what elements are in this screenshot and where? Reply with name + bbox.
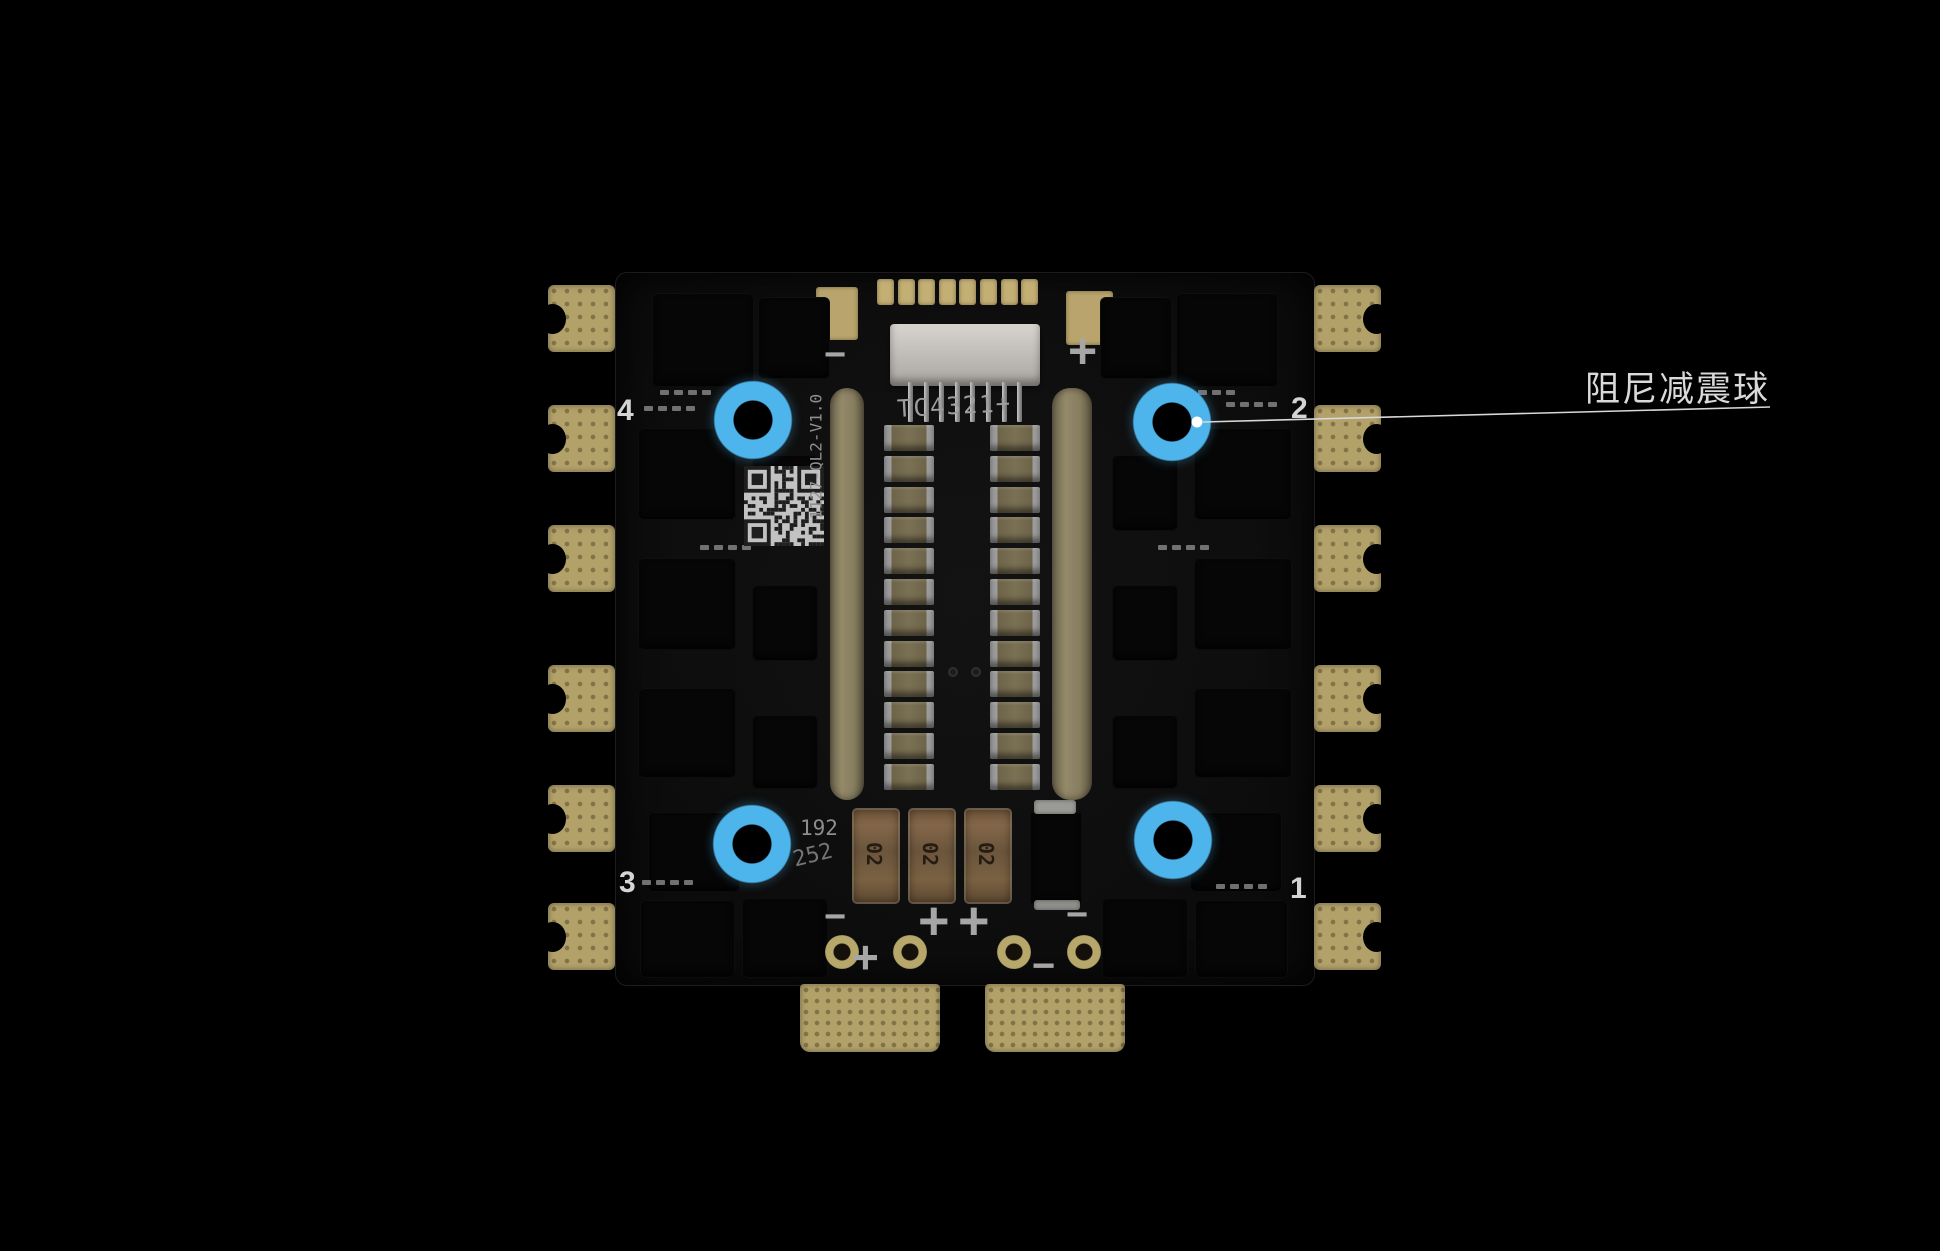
mlcc-capacitor xyxy=(884,517,934,543)
pin-dash xyxy=(1268,402,1277,407)
diode-lead xyxy=(1034,800,1076,814)
pin-dash xyxy=(674,390,683,395)
mlcc-capacitor xyxy=(990,610,1040,636)
tab-notch xyxy=(1363,424,1390,454)
silkscreen-code-192: 192 xyxy=(800,816,838,840)
connector-pad xyxy=(939,279,956,305)
mlcc-capacitor xyxy=(884,671,934,697)
damping-ball-highlight xyxy=(1133,800,1213,880)
mosfet-chip xyxy=(652,293,754,387)
mlcc-capacitor xyxy=(990,425,1040,451)
bulk-capacitor: 02 xyxy=(964,808,1012,904)
via-hole xyxy=(971,667,981,677)
battery-pad xyxy=(985,984,1125,1052)
mlcc-capacitor xyxy=(990,517,1040,543)
mlcc-capacitor xyxy=(884,548,934,574)
solder-pad-hole xyxy=(997,935,1031,969)
pin-dash xyxy=(1230,884,1239,889)
pin-dash xyxy=(672,406,681,411)
ffc-connector xyxy=(890,324,1040,386)
pin-dash xyxy=(1186,545,1195,550)
silkscreen-version-text: 1127-QL2-V1.0 xyxy=(807,347,826,567)
mosfet-chip xyxy=(1194,688,1292,778)
mlcc-capacitor xyxy=(990,764,1040,790)
mosfet-chip xyxy=(638,558,736,650)
pin-dash xyxy=(688,390,697,395)
connector-pad xyxy=(918,279,935,305)
connector-pad xyxy=(959,279,976,305)
mlcc-capacitor xyxy=(884,425,934,451)
bulk-capacitor: 02 xyxy=(908,808,956,904)
mosfet-chip xyxy=(640,900,735,978)
tab-notch xyxy=(1363,684,1390,714)
tab-notch xyxy=(1363,922,1390,952)
motor-pad-tab xyxy=(1314,405,1381,472)
pin-dash xyxy=(1240,402,1249,407)
mlcc-capacitor xyxy=(884,702,934,728)
mlcc-capacitor xyxy=(884,764,934,790)
motor-pad-tab xyxy=(1314,785,1381,852)
pin-dash xyxy=(658,406,667,411)
mosfet-chip xyxy=(638,688,736,778)
connector-pad xyxy=(980,279,997,305)
bottom-plus-center-right-mark: + xyxy=(958,894,990,948)
motor-pad-tab xyxy=(548,525,615,592)
pin-dash xyxy=(1212,390,1221,395)
tab-notch xyxy=(539,544,566,574)
mosfet-chip xyxy=(1176,293,1278,387)
bottom-minus-left-mark: − xyxy=(824,898,846,936)
pin-dash xyxy=(684,880,693,885)
connector-pad xyxy=(1021,279,1038,305)
pin-dash xyxy=(1172,545,1181,550)
pin-dash xyxy=(1254,402,1263,407)
motor-number-3: 3 xyxy=(619,868,636,898)
damping-ball-highlight xyxy=(1132,382,1212,462)
mosfet-chip xyxy=(1112,585,1178,661)
motor-pad-tab xyxy=(548,285,615,352)
center-rail-left xyxy=(830,388,864,800)
pin-dash xyxy=(1216,884,1225,889)
damping-ball-highlight xyxy=(713,380,793,460)
mosfet-chip xyxy=(1195,900,1288,978)
pin-dash xyxy=(670,880,679,885)
mlcc-capacitor xyxy=(990,702,1040,728)
pin-dash xyxy=(728,545,737,550)
motor-number-2: 2 xyxy=(1291,394,1308,424)
mosfet-chip xyxy=(1112,455,1178,531)
mlcc-capacitor xyxy=(990,456,1040,482)
pin-dash xyxy=(1258,884,1267,889)
motor-number-4: 4 xyxy=(617,396,634,426)
bottom-minus-right-mark: − xyxy=(1066,896,1088,934)
connector-pad xyxy=(877,279,894,305)
mlcc-capacitor xyxy=(884,579,934,605)
battery-pad xyxy=(800,984,940,1052)
damping-ball-highlight xyxy=(712,804,792,884)
solder-pad-hole xyxy=(1067,935,1101,969)
mosfet-chip xyxy=(1194,428,1292,520)
pin-dash xyxy=(644,406,653,411)
mosfet-chip xyxy=(1102,898,1188,978)
bulk-capacitor: 02 xyxy=(852,808,900,904)
mosfet-chip xyxy=(752,715,818,789)
connector-pad xyxy=(898,279,915,305)
mosfet-chip xyxy=(1100,297,1172,379)
tab-notch xyxy=(1363,544,1390,574)
motor-pad-tab xyxy=(1314,525,1381,592)
product-image-stage: 020202 4 2 3 1 TC4321+ 1127-QL2-V1.0 192… xyxy=(0,0,1940,1251)
mlcc-capacitor xyxy=(884,641,934,667)
mosfet-chip xyxy=(752,585,818,661)
pin-dash xyxy=(700,545,709,550)
pin-dash xyxy=(1200,545,1209,550)
capacitor-marking: 02 xyxy=(918,842,942,866)
pin-dash xyxy=(642,880,651,885)
damping-ball-label: 阻尼减震球 xyxy=(1585,361,1770,412)
center-rail-right xyxy=(1052,388,1092,800)
connector-pad xyxy=(1001,279,1018,305)
motor-pad-tab xyxy=(548,903,615,970)
mosfet-chip xyxy=(1112,715,1178,789)
pin-dash xyxy=(1226,390,1235,395)
mlcc-capacitor xyxy=(990,548,1040,574)
pin-dash xyxy=(660,390,669,395)
bottom-plus-pad-mark: + xyxy=(852,934,879,980)
bottom-minus-pad-mark: − xyxy=(1032,946,1055,986)
top-plus-mark: + xyxy=(1068,326,1097,376)
diode-component xyxy=(1030,812,1082,904)
bottom-plus-center-left-mark: + xyxy=(918,894,950,948)
mlcc-capacitor xyxy=(990,579,1040,605)
tab-notch xyxy=(539,922,566,952)
pin-dash xyxy=(702,390,711,395)
tab-notch xyxy=(539,684,566,714)
mosfet-chip xyxy=(742,898,828,978)
mlcc-capacitor xyxy=(884,733,934,759)
motor-pad-tab xyxy=(548,405,615,472)
tab-notch xyxy=(1363,304,1390,334)
mlcc-capacitor xyxy=(990,641,1040,667)
pin-dash xyxy=(686,406,695,411)
via-hole xyxy=(948,667,958,677)
pin-dash xyxy=(714,545,723,550)
motor-number-1: 1 xyxy=(1290,874,1307,904)
mosfet-chip xyxy=(1194,558,1292,650)
mlcc-capacitor xyxy=(884,456,934,482)
pin-dash xyxy=(656,880,665,885)
pin-dash xyxy=(1226,402,1235,407)
mlcc-capacitor xyxy=(990,487,1040,513)
motor-pad-tab xyxy=(1314,665,1381,732)
pin-dash xyxy=(1244,884,1253,889)
motor-pad-tab xyxy=(548,785,615,852)
tab-notch xyxy=(1363,804,1390,834)
mlcc-capacitor xyxy=(884,610,934,636)
mlcc-capacitor xyxy=(990,733,1040,759)
top-minus-mark: − xyxy=(824,336,846,374)
motor-pad-tab xyxy=(548,665,615,732)
capacitor-marking: 02 xyxy=(862,842,886,866)
tab-notch xyxy=(539,424,566,454)
motor-pad-tab xyxy=(1314,285,1381,352)
tab-notch xyxy=(539,804,566,834)
tab-notch xyxy=(539,304,566,334)
connector-pin xyxy=(1017,382,1022,422)
pin-dash xyxy=(1158,545,1167,550)
capacitor-marking: 02 xyxy=(974,842,998,866)
motor-pad-tab xyxy=(1314,903,1381,970)
mlcc-capacitor xyxy=(884,487,934,513)
mlcc-capacitor xyxy=(990,671,1040,697)
